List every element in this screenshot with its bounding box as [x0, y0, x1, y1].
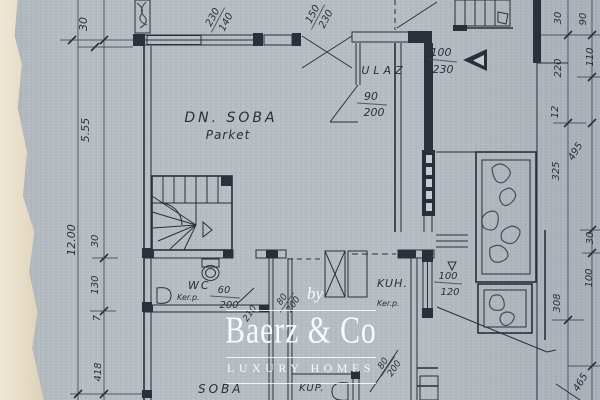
svg-text:130: 130: [90, 275, 101, 294]
svg-text:7: 7: [92, 314, 103, 321]
svg-text:308: 308: [552, 293, 563, 312]
staircase: [152, 176, 232, 250]
room-label-ulaz: ULAZ: [361, 64, 406, 77]
room-label-soba: SOBA: [198, 382, 244, 396]
room-label-wc: WC: [188, 279, 211, 292]
vestibule-door-size: 90 200: [357, 90, 387, 119]
svg-text:220: 220: [553, 58, 564, 77]
room-floor-dn-soba: Parket: [206, 128, 251, 142]
watermark-tagline: LUXURY HOMES: [226, 361, 376, 376]
watermark-by: by: [240, 284, 390, 304]
svg-text:30: 30: [553, 12, 564, 25]
svg-text:30: 30: [90, 235, 101, 248]
svg-text:465: 465: [571, 372, 590, 394]
floor-plan-photo: 30 5.55 12.00 30 130 7 418 30 220 12 325…: [0, 0, 600, 400]
svg-text:100: 100: [584, 268, 595, 287]
svg-text:5.55: 5.55: [79, 118, 92, 143]
svg-text:110: 110: [585, 47, 596, 66]
kup-basin-icon: [332, 383, 348, 400]
watermark-brand: Baerz & Co: [225, 310, 378, 353]
wc-door-size: 60 200: [210, 285, 240, 311]
room-label-dn-soba: DN. SOBA: [184, 110, 277, 126]
svg-text:12.00: 12.00: [65, 224, 78, 256]
svg-text:30: 30: [77, 17, 90, 31]
room-floor-wc: Ker.p.: [177, 293, 200, 302]
toilet-icon: [202, 259, 219, 281]
kitchen-window-size: 100 120: [434, 262, 462, 298]
svg-text:200: 200: [364, 106, 385, 119]
wc-sink-icon: [157, 288, 171, 304]
svg-text:230: 230: [433, 63, 454, 76]
lightwell-planting: [436, 152, 580, 400]
svg-text:100: 100: [431, 46, 452, 59]
svg-text:30: 30: [585, 232, 596, 245]
svg-text:90: 90: [578, 13, 589, 26]
svg-text:120: 120: [440, 287, 459, 298]
entrance-arrow-icon: [463, 49, 487, 71]
svg-text:325: 325: [551, 161, 562, 180]
svg-text:495: 495: [566, 141, 585, 163]
svg-text:418: 418: [93, 362, 104, 381]
watermark-rule-bottom: [226, 383, 376, 384]
watermark-rule-middle: [226, 357, 376, 358]
entry-steps: [395, 0, 513, 31]
svg-text:60: 60: [218, 285, 231, 296]
svg-text:100: 100: [438, 271, 457, 282]
room-label-kup: KUP.: [299, 383, 325, 394]
svg-text:12: 12: [550, 106, 561, 119]
svg-text:90: 90: [364, 90, 378, 103]
